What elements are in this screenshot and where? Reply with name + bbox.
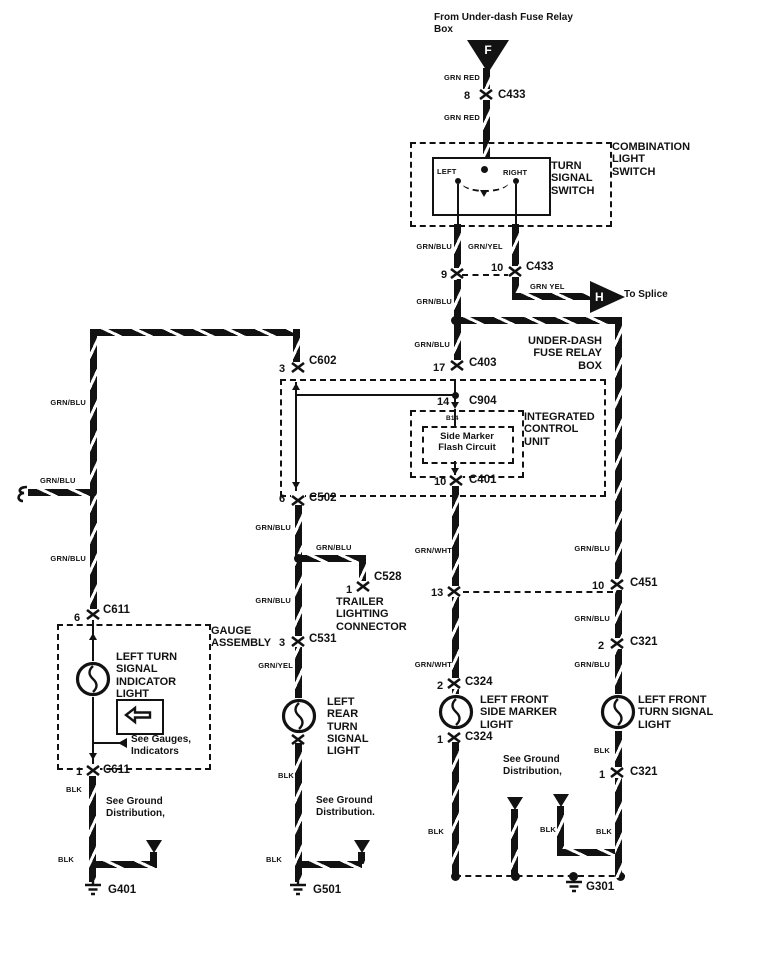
wire-label-col4-grn-blu-b: GRN/BLU — [566, 615, 610, 623]
wire-label-grn-blu-2: GRN/BLU — [412, 298, 452, 306]
fuse-box-label: UNDER-DASH FUSE RELAY BOX — [508, 335, 602, 372]
connector-icon-10 — [508, 266, 522, 277]
turn-signal-switch-label: TURN SIGNAL SWITCH — [551, 160, 594, 197]
connector-icon-c611-top — [86, 609, 100, 620]
wire-label-col4-grn-blu-a: GRN/BLU — [566, 545, 610, 553]
wire-top-left-run — [92, 329, 298, 336]
pin-17: 17 — [433, 363, 445, 374]
connector-icon-c403 — [450, 360, 464, 371]
splice-curl-icon — [15, 485, 29, 503]
marker-f-letter: F — [484, 43, 491, 57]
see-ground-note-3: See Ground Distribution, — [503, 754, 562, 778]
pin-2-c321: 2 — [598, 641, 604, 652]
connector-c403: C403 — [469, 358, 497, 370]
wire-label-col4-blk-a: BLK — [594, 747, 610, 755]
ground-branch-h-1 — [94, 861, 157, 868]
left-rear-turn-label: LEFT REAR TURN SIGNAL LIGHT — [327, 696, 369, 758]
switch-left-label: LEFT — [437, 168, 457, 176]
ground-g501: G501 — [313, 885, 341, 897]
connector-c321-top: C321 — [630, 637, 658, 649]
ground-icon-g501 — [288, 881, 308, 897]
ground-bus-dot-1 — [451, 872, 460, 881]
gauge-arrow-down — [89, 753, 97, 760]
gauge-assembly-label: GAUGE ASSEMBLY — [211, 625, 271, 650]
gauge-arrow-up — [89, 633, 97, 640]
circuit-marker-h: H — [590, 281, 625, 313]
side-marker-flash-label: Side Marker Flash Circuit — [424, 431, 510, 453]
side-marker-light-label: LEFT FRONT SIDE MARKER LIGHT — [480, 694, 557, 731]
ground-branch-h-4 — [557, 849, 622, 856]
wire-col4-ground — [615, 731, 622, 878]
connector-c531: C531 — [309, 634, 337, 646]
pin-1-c324: 1 — [437, 735, 443, 746]
connector-c528: C528 — [374, 572, 402, 584]
ground-branch-v-3 — [511, 809, 518, 875]
bulb-icon-side-marker — [437, 693, 475, 731]
connector-icon-c531 — [291, 636, 305, 647]
pin-2-c324: 2 — [437, 681, 443, 692]
wire-label-branch-blk: BLK — [540, 826, 556, 834]
switch-right-lead — [515, 184, 517, 224]
bulb-icon-left-rear-turn — [280, 697, 318, 735]
wire-to-c602 — [293, 329, 300, 365]
pin-10-c451: 10 — [592, 581, 604, 592]
ground-bus — [455, 875, 625, 877]
wire-label-grn-red-2: GRN RED — [440, 114, 480, 122]
bulb-icon-front-turn — [599, 693, 637, 731]
ground-g301: G301 — [586, 882, 614, 894]
wiring-diagram-canvas: From Under-dash Fuse Relay Box F GRN RED… — [0, 0, 768, 975]
ground-icon-g301 — [564, 878, 584, 894]
left-arrow-icon — [123, 705, 153, 725]
see-ground-note-1: See Ground Distribution, — [106, 796, 165, 820]
connector-icon-c321-bottom — [610, 767, 624, 778]
connector-icon-c451 — [610, 579, 624, 590]
ground-icon-g401 — [83, 881, 103, 897]
connector-c324-bottom: C324 — [465, 732, 493, 744]
see-gauges-note: See Gauges, Indicators — [131, 734, 191, 758]
wire-col1-upper — [90, 329, 97, 610]
marker-h-letter: H — [595, 290, 604, 304]
pin-10-c401: 10 — [434, 477, 446, 488]
junction-dot-col1 — [88, 488, 97, 497]
see-ground-note-2: See Ground Distribution. — [316, 795, 375, 819]
pin-8: 8 — [464, 91, 470, 102]
pin-3-c531: 3 — [279, 638, 285, 649]
source-note: From Under-dash Fuse Relay Box — [434, 12, 594, 36]
wire-label-col2-blk-a: BLK — [278, 772, 294, 780]
wire-label-col4-grn-blu-c: GRN/BLU — [566, 661, 610, 669]
wire-label-grn-blu-3: GRN/BLU — [408, 341, 450, 349]
wire-label-col3-grn-wht-a: GRN/WHT — [408, 547, 452, 555]
connector-c451: C451 — [630, 578, 658, 590]
connector-icon-c321-top — [610, 638, 624, 649]
fusebox-internal-left-lead — [295, 382, 297, 491]
see-gauges-callout-line — [94, 742, 120, 744]
wire-label-col4-blk-b: BLK — [596, 828, 612, 836]
pin-1-c528: 1 — [346, 585, 352, 596]
icu-lead-upper — [454, 409, 456, 426]
combination-switch-label: COMBINATION LIGHT SWITCH — [612, 141, 690, 178]
pin-9: 9 — [441, 270, 447, 281]
switch-wiper-arc — [461, 172, 509, 192]
pin-b14: B14 — [446, 416, 459, 423]
connector-icon-c602 — [291, 362, 305, 373]
pin-10-c433: 10 — [491, 263, 503, 274]
to-splice-note: To Splice — [624, 289, 668, 301]
wire-label-col1-splice: GRN/BLU — [40, 477, 76, 485]
connector-c433-bottom: C433 — [526, 262, 554, 274]
fusebox-arrow-up — [292, 383, 300, 390]
wire-label-grn-yel-splice: GRN YEL — [530, 283, 565, 291]
wire-col2-upper — [295, 505, 302, 698]
connector-c324-top: C324 — [465, 677, 493, 689]
wire-label-grn-blu-1: GRN/BLU — [412, 243, 452, 251]
indicator-light-label: LEFT TURN SIGNAL INDICATOR LIGHT — [116, 651, 177, 700]
connector-icon-13 — [447, 586, 461, 597]
wire-label-grn-yel-1: GRN/YEL — [468, 243, 503, 251]
wire-label-col2-grn-blu-b: GRN/BLU — [251, 597, 291, 605]
ground-g401: G401 — [108, 885, 136, 897]
wire-label-col1-grn-blu-a: GRN/BLU — [34, 399, 86, 407]
wire-label-col3-grn-wht-b: GRN/WHT — [408, 661, 452, 669]
wire-to-c403 — [454, 324, 461, 364]
connector-arrow-c904 — [451, 402, 459, 409]
connector-c602: C602 — [309, 356, 337, 368]
wire-label-col1-blk-a: BLK — [66, 786, 82, 794]
wire-trailer-branch-v — [359, 555, 366, 583]
connector-c502: C502 — [309, 493, 337, 505]
wire-top-right-run — [454, 317, 622, 324]
pin-14: 14 — [437, 397, 449, 408]
wire-label-grn-red-1: GRN RED — [440, 74, 480, 82]
connector-icon-c528 — [356, 581, 370, 592]
connector-icon-c324-top — [447, 678, 461, 689]
icu-arrow-down — [451, 468, 459, 475]
wire-label-col2-blk-b: BLK — [266, 856, 282, 864]
connector-link-13-10 — [463, 591, 613, 593]
trailer-connector-label: TRAILER LIGHTING CONNECTOR — [336, 596, 407, 633]
wire-label-col2-grn-yel: GRN/YEL — [253, 662, 293, 670]
wire-label-col2-grn-blu-a: GRN/BLU — [251, 524, 291, 532]
connector-c321-bottom: C321 — [630, 767, 658, 779]
wire-col1-splice — [28, 489, 92, 496]
junction-dot-fusebox — [452, 392, 459, 399]
connector-c904: C904 — [469, 396, 497, 408]
wire-label-col1-blk-b: BLK — [58, 856, 74, 864]
connector-c611-bottom: C611 — [103, 765, 130, 777]
bulb-icon-indicator — [74, 660, 112, 698]
gauge-lead-upper — [92, 620, 94, 661]
connector-icon-c611-bottom — [86, 765, 100, 776]
wire-to-splice — [512, 293, 592, 300]
connector-icon-c401 — [449, 475, 463, 486]
ground-branch-h-2 — [300, 861, 362, 868]
fusebox-arrow-down — [292, 482, 300, 489]
pin-1-c611: 1 — [76, 767, 82, 778]
pin-6-c502: 6 — [279, 494, 285, 505]
pin-1-c321: 1 — [599, 770, 605, 781]
switch-wiper-arrow — [480, 190, 488, 197]
integrated-control-unit-label: INTEGRATED CONTROL UNIT — [524, 411, 595, 448]
connector-c433-top: C433 — [498, 90, 526, 102]
wire-col3-ground — [452, 742, 459, 878]
pin-6-c611: 6 — [74, 613, 80, 624]
connector-icon-c433-top — [479, 89, 493, 100]
connector-link-9-10 — [462, 274, 510, 276]
switch-left-lead — [457, 184, 459, 224]
connector-c401: C401 — [469, 475, 497, 487]
wire-trailer-branch-h — [298, 555, 366, 562]
pin-3-c602: 3 — [279, 364, 285, 375]
front-turn-light-label: LEFT FRONT TURN SIGNAL LIGHT — [638, 694, 713, 731]
wire-label-col1-grn-blu-b: GRN/BLU — [34, 555, 86, 563]
wire-label-trailer-branch: GRN/BLU — [316, 544, 352, 552]
pin-13: 13 — [431, 588, 443, 599]
fusebox-internal-cross-lead — [296, 394, 456, 396]
connector-c611-top: C611 — [103, 605, 130, 617]
wire-label-col3-blk: BLK — [428, 828, 444, 836]
see-gauges-arrow — [118, 738, 127, 748]
